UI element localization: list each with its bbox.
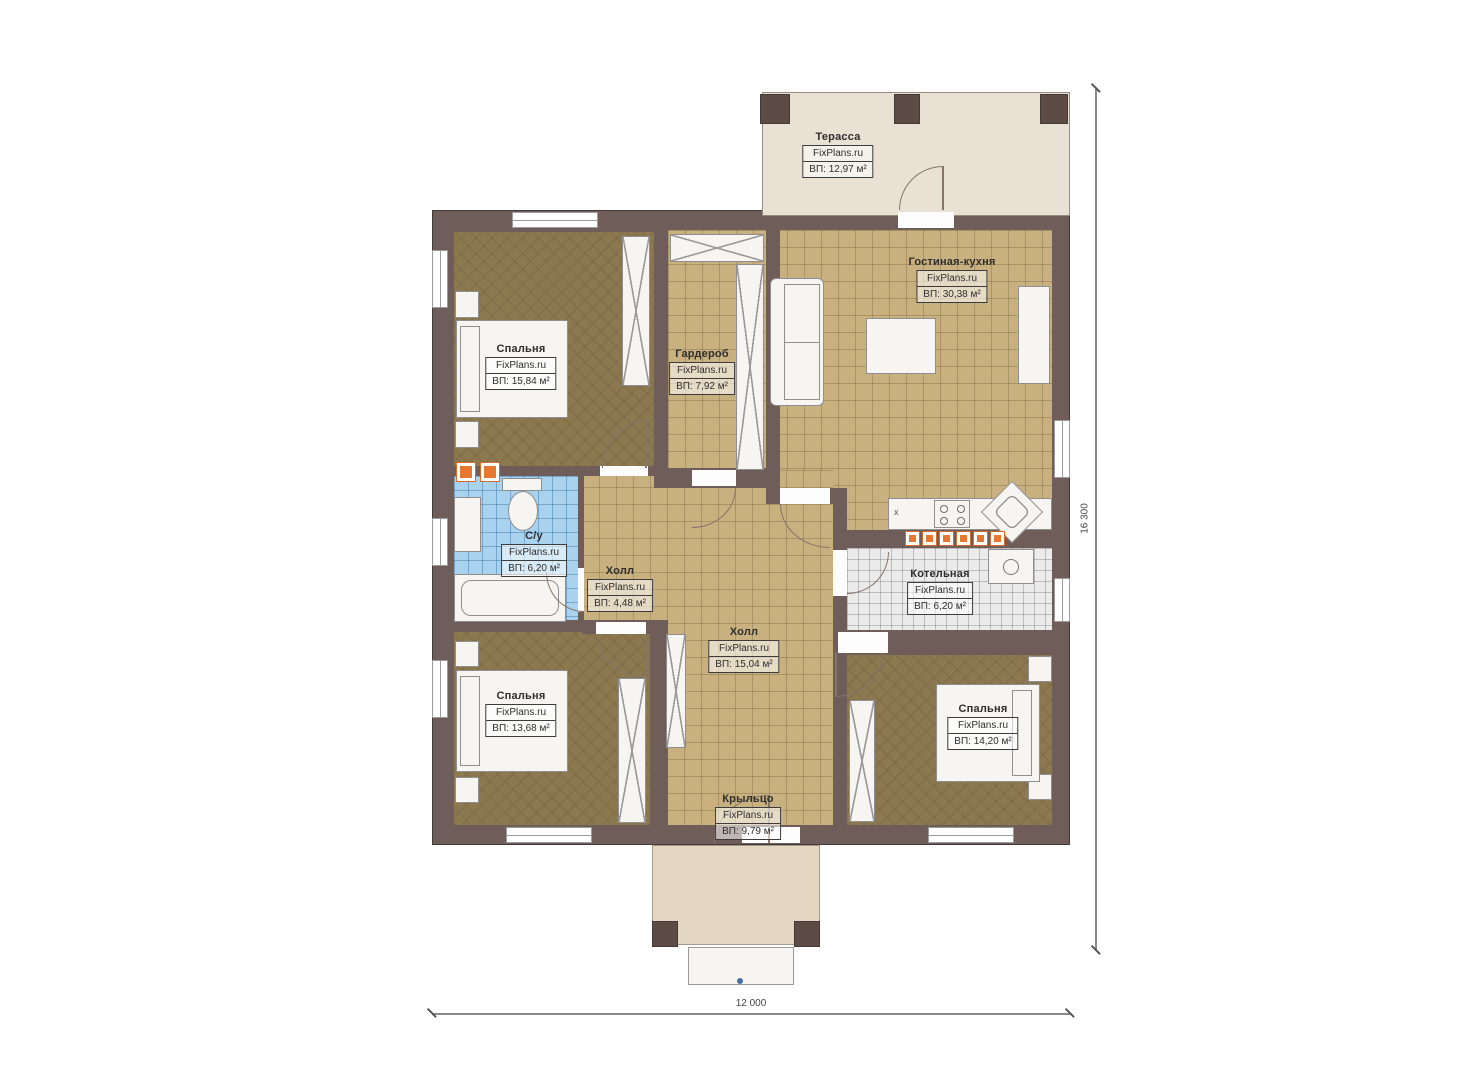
room-area: ВП: 9,79 м² bbox=[716, 823, 780, 839]
room-area: ВП: 4,48 м² bbox=[588, 595, 652, 611]
terrace-door-leaf-icon bbox=[942, 166, 944, 210]
room-info-box: FixPlans.ru ВП: 13,68 м² bbox=[485, 704, 556, 737]
room-label-hall-main: Холл FixPlans.ru ВП: 15,04 м² bbox=[708, 626, 779, 673]
porch-pier bbox=[794, 921, 820, 947]
toilet-icon bbox=[508, 491, 538, 531]
wardrobe-cabinet-icon bbox=[618, 678, 646, 823]
fridge bbox=[1018, 286, 1050, 384]
room-name: Холл bbox=[587, 565, 653, 577]
vent-block-icon bbox=[457, 463, 475, 481]
room-label-bedroom-right: Спальня FixPlans.ru ВП: 14,20 м² bbox=[947, 703, 1018, 750]
door-opening bbox=[596, 622, 646, 634]
floor-plan: х Терасса FixPlans.ru ВП: 12,97 м² Гости… bbox=[0, 0, 1474, 1080]
room-info-box: FixPlans.ru ВП: 15,84 м² bbox=[485, 357, 556, 390]
room-label-bedroom-left: Спальня FixPlans.ru ВП: 13,68 м² bbox=[485, 690, 556, 737]
wardrobe-cabinet-icon bbox=[666, 634, 686, 748]
room-name: Спальня bbox=[485, 343, 556, 355]
nightstand bbox=[1028, 656, 1052, 682]
wardrobe-cabinet-icon bbox=[736, 264, 764, 470]
door-leaf-icon bbox=[835, 653, 837, 697]
watermark: FixPlans.ru bbox=[588, 580, 652, 595]
room-info-box: FixPlans.ru ВП: 4,48 м² bbox=[587, 579, 653, 612]
room-area: ВП: 6,20 м² bbox=[502, 560, 566, 576]
room-area: ВП: 15,04 м² bbox=[709, 656, 778, 672]
dimension-line-horizontal bbox=[432, 1013, 1070, 1015]
stove-icon bbox=[934, 500, 970, 528]
room-area: ВП: 7,92 м² bbox=[670, 378, 734, 394]
room-name: Гардероб bbox=[669, 348, 735, 360]
room-name: Гостиная-кухня bbox=[908, 256, 995, 268]
room-name: Спальня bbox=[485, 690, 556, 702]
watermark: FixPlans.ru bbox=[948, 718, 1017, 733]
room-label-boiler: Котельная FixPlans.ru ВП: 6,20 м² bbox=[907, 568, 973, 615]
dimension-line-vertical bbox=[1095, 88, 1097, 950]
table bbox=[866, 318, 936, 374]
watermark: FixPlans.ru bbox=[917, 271, 986, 286]
nightstand bbox=[455, 777, 479, 803]
window bbox=[1054, 420, 1070, 478]
wardrobe-cabinet-icon bbox=[622, 236, 650, 386]
room-name: Терасса bbox=[802, 131, 873, 143]
door-opening bbox=[692, 470, 736, 486]
watermark: FixPlans.ru bbox=[908, 583, 972, 598]
boiler-unit-icon bbox=[988, 549, 1034, 584]
vent-row bbox=[906, 532, 1004, 545]
room-name: Крыльцо bbox=[715, 793, 781, 805]
vent-block-icon bbox=[940, 532, 953, 545]
door-opening bbox=[833, 550, 847, 596]
room-info-box: FixPlans.ru ВП: 6,20 м² bbox=[501, 544, 567, 577]
sofa-seat bbox=[784, 284, 820, 400]
room-info-box: FixPlans.ru ВП: 12,97 м² bbox=[802, 145, 873, 178]
nightstand bbox=[455, 421, 479, 448]
window bbox=[432, 660, 448, 718]
room-name: С/у bbox=[501, 530, 567, 542]
dimension-width-label: 12 000 bbox=[432, 998, 1070, 1009]
room-info-box: FixPlans.ru ВП: 6,20 м² bbox=[907, 582, 973, 615]
room-name: Котельная bbox=[907, 568, 973, 580]
room-label-terrace: Терасса FixPlans.ru ВП: 12,97 м² bbox=[802, 131, 873, 178]
window bbox=[506, 827, 592, 843]
terrace-door-opening bbox=[898, 212, 954, 228]
vent-block-icon bbox=[991, 532, 1004, 545]
room-name: Спальня bbox=[947, 703, 1018, 715]
nightstand bbox=[455, 641, 479, 667]
door-opening bbox=[780, 488, 830, 504]
watermark: FixPlans.ru bbox=[486, 358, 555, 373]
room-info-box: FixPlans.ru ВП: 9,79 м² bbox=[715, 807, 781, 840]
watermark: FixPlans.ru bbox=[803, 146, 872, 161]
terrace-pier bbox=[760, 94, 790, 124]
room-info-box: FixPlans.ru ВП: 14,20 м² bbox=[947, 717, 1018, 750]
room-info-box: FixPlans.ru ВП: 15,04 м² bbox=[708, 640, 779, 673]
nightstand bbox=[455, 291, 479, 318]
watermark: FixPlans.ru bbox=[502, 545, 566, 560]
window bbox=[1054, 578, 1070, 622]
window bbox=[512, 212, 598, 228]
room-label-living-kitchen: Гостиная-кухня FixPlans.ru ВП: 30,38 м² bbox=[908, 256, 995, 303]
watermark: FixPlans.ru bbox=[670, 363, 734, 378]
vent-block-icon bbox=[481, 463, 499, 481]
terrace-pier bbox=[1040, 94, 1068, 124]
room-info-box: FixPlans.ru ВП: 7,92 м² bbox=[669, 362, 735, 395]
hob-mark: х bbox=[894, 507, 899, 517]
terrace-pier bbox=[894, 94, 920, 124]
room-area: ВП: 15,84 м² bbox=[486, 373, 555, 389]
watermark: FixPlans.ru bbox=[716, 808, 780, 823]
room-name: Холл bbox=[708, 626, 779, 638]
room-info-box: FixPlans.ru ВП: 30,38 м² bbox=[916, 270, 987, 303]
door-opening bbox=[838, 632, 888, 653]
porch-pier bbox=[652, 921, 678, 947]
bed-pillow bbox=[460, 676, 480, 766]
toilet-tank bbox=[502, 478, 542, 491]
watermark: FixPlans.ru bbox=[486, 705, 555, 720]
room-label-porch: Крыльцо FixPlans.ru ВП: 9,79 м² bbox=[715, 793, 781, 840]
window bbox=[928, 827, 1014, 843]
vent-block-icon bbox=[923, 532, 936, 545]
bed-pillow bbox=[460, 326, 480, 412]
room-label-hall-small: Холл FixPlans.ru ВП: 4,48 м² bbox=[587, 565, 653, 612]
steps-marker-icon bbox=[737, 978, 743, 984]
room-label-bedroom-top: Спальня FixPlans.ru ВП: 15,84 м² bbox=[485, 343, 556, 390]
watermark: FixPlans.ru bbox=[709, 641, 778, 656]
vent-block-icon bbox=[906, 532, 919, 545]
door-leaf-icon bbox=[645, 634, 647, 678]
wardrobe-cabinet-icon bbox=[670, 234, 764, 262]
vent-block-icon bbox=[957, 532, 970, 545]
room-area: ВП: 14,20 м² bbox=[948, 733, 1017, 749]
window bbox=[432, 250, 448, 308]
room-label-wardrobe: Гардероб FixPlans.ru ВП: 7,92 м² bbox=[669, 348, 735, 395]
dimension-height-label: 16 300 bbox=[1080, 487, 1091, 551]
room-area: ВП: 30,38 м² bbox=[917, 286, 986, 302]
door-leaf-icon bbox=[645, 420, 647, 468]
washing-machine bbox=[454, 497, 481, 552]
room-label-bathroom: С/у FixPlans.ru ВП: 6,20 м² bbox=[501, 530, 567, 577]
window bbox=[432, 518, 448, 566]
room-area: ВП: 6,20 м² bbox=[908, 598, 972, 614]
vent-block-icon bbox=[974, 532, 987, 545]
wardrobe-cabinet-icon bbox=[849, 700, 875, 822]
room-area: ВП: 13,68 м² bbox=[486, 720, 555, 736]
room-area: ВП: 12,97 м² bbox=[803, 161, 872, 177]
